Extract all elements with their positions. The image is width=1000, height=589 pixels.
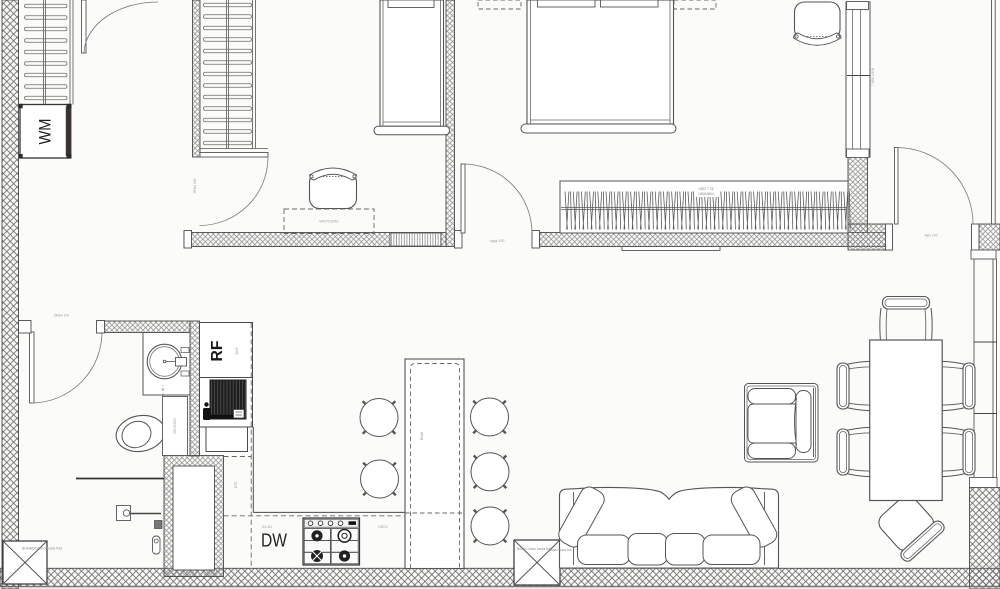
svg-text:OBk4 10l: OBk4 10l xyxy=(54,314,69,318)
svg-text:9Pb4 1W: 9Pb4 1W xyxy=(193,178,197,193)
svg-text:DSG2: DSG2 xyxy=(378,525,387,529)
svg-text:nyqa 100: nyqa 100 xyxy=(490,239,505,243)
svg-text:7.866 1/8 B: 7.866 1/8 B xyxy=(871,67,875,86)
svg-text:Ajto 100: Ajto 100 xyxy=(924,234,937,238)
svg-text:HELYISEG: HELYISEG xyxy=(173,418,177,434)
svg-text:BGMBD/D1M.Glbusta Pad: BGMBD/D1M.Glbusta Pad xyxy=(22,547,62,551)
svg-text:RF: RF xyxy=(209,341,226,362)
svg-text:D75: D75 xyxy=(234,482,238,488)
svg-text:D1-4G: D1-4G xyxy=(262,525,272,529)
svg-text:HBGMB04: HBGMB04 xyxy=(698,192,713,196)
svg-text:VAKTGIZRU: VAKTGIZRU xyxy=(319,220,339,224)
svg-text:WM: WM xyxy=(36,119,55,145)
svg-text:DW: DW xyxy=(261,530,287,551)
svg-text:B1/6: B1/6 xyxy=(235,347,239,354)
svg-text:HB07 7 28: HB07 7 28 xyxy=(698,187,713,191)
svg-text:BiSurCl laka Jarda fun: BiSurCl laka Jarda fun xyxy=(517,547,551,551)
svg-text:aqta uuuta fun: aqta uuuta fun xyxy=(550,548,572,552)
svg-text:B5d8: B5d8 xyxy=(420,432,424,440)
